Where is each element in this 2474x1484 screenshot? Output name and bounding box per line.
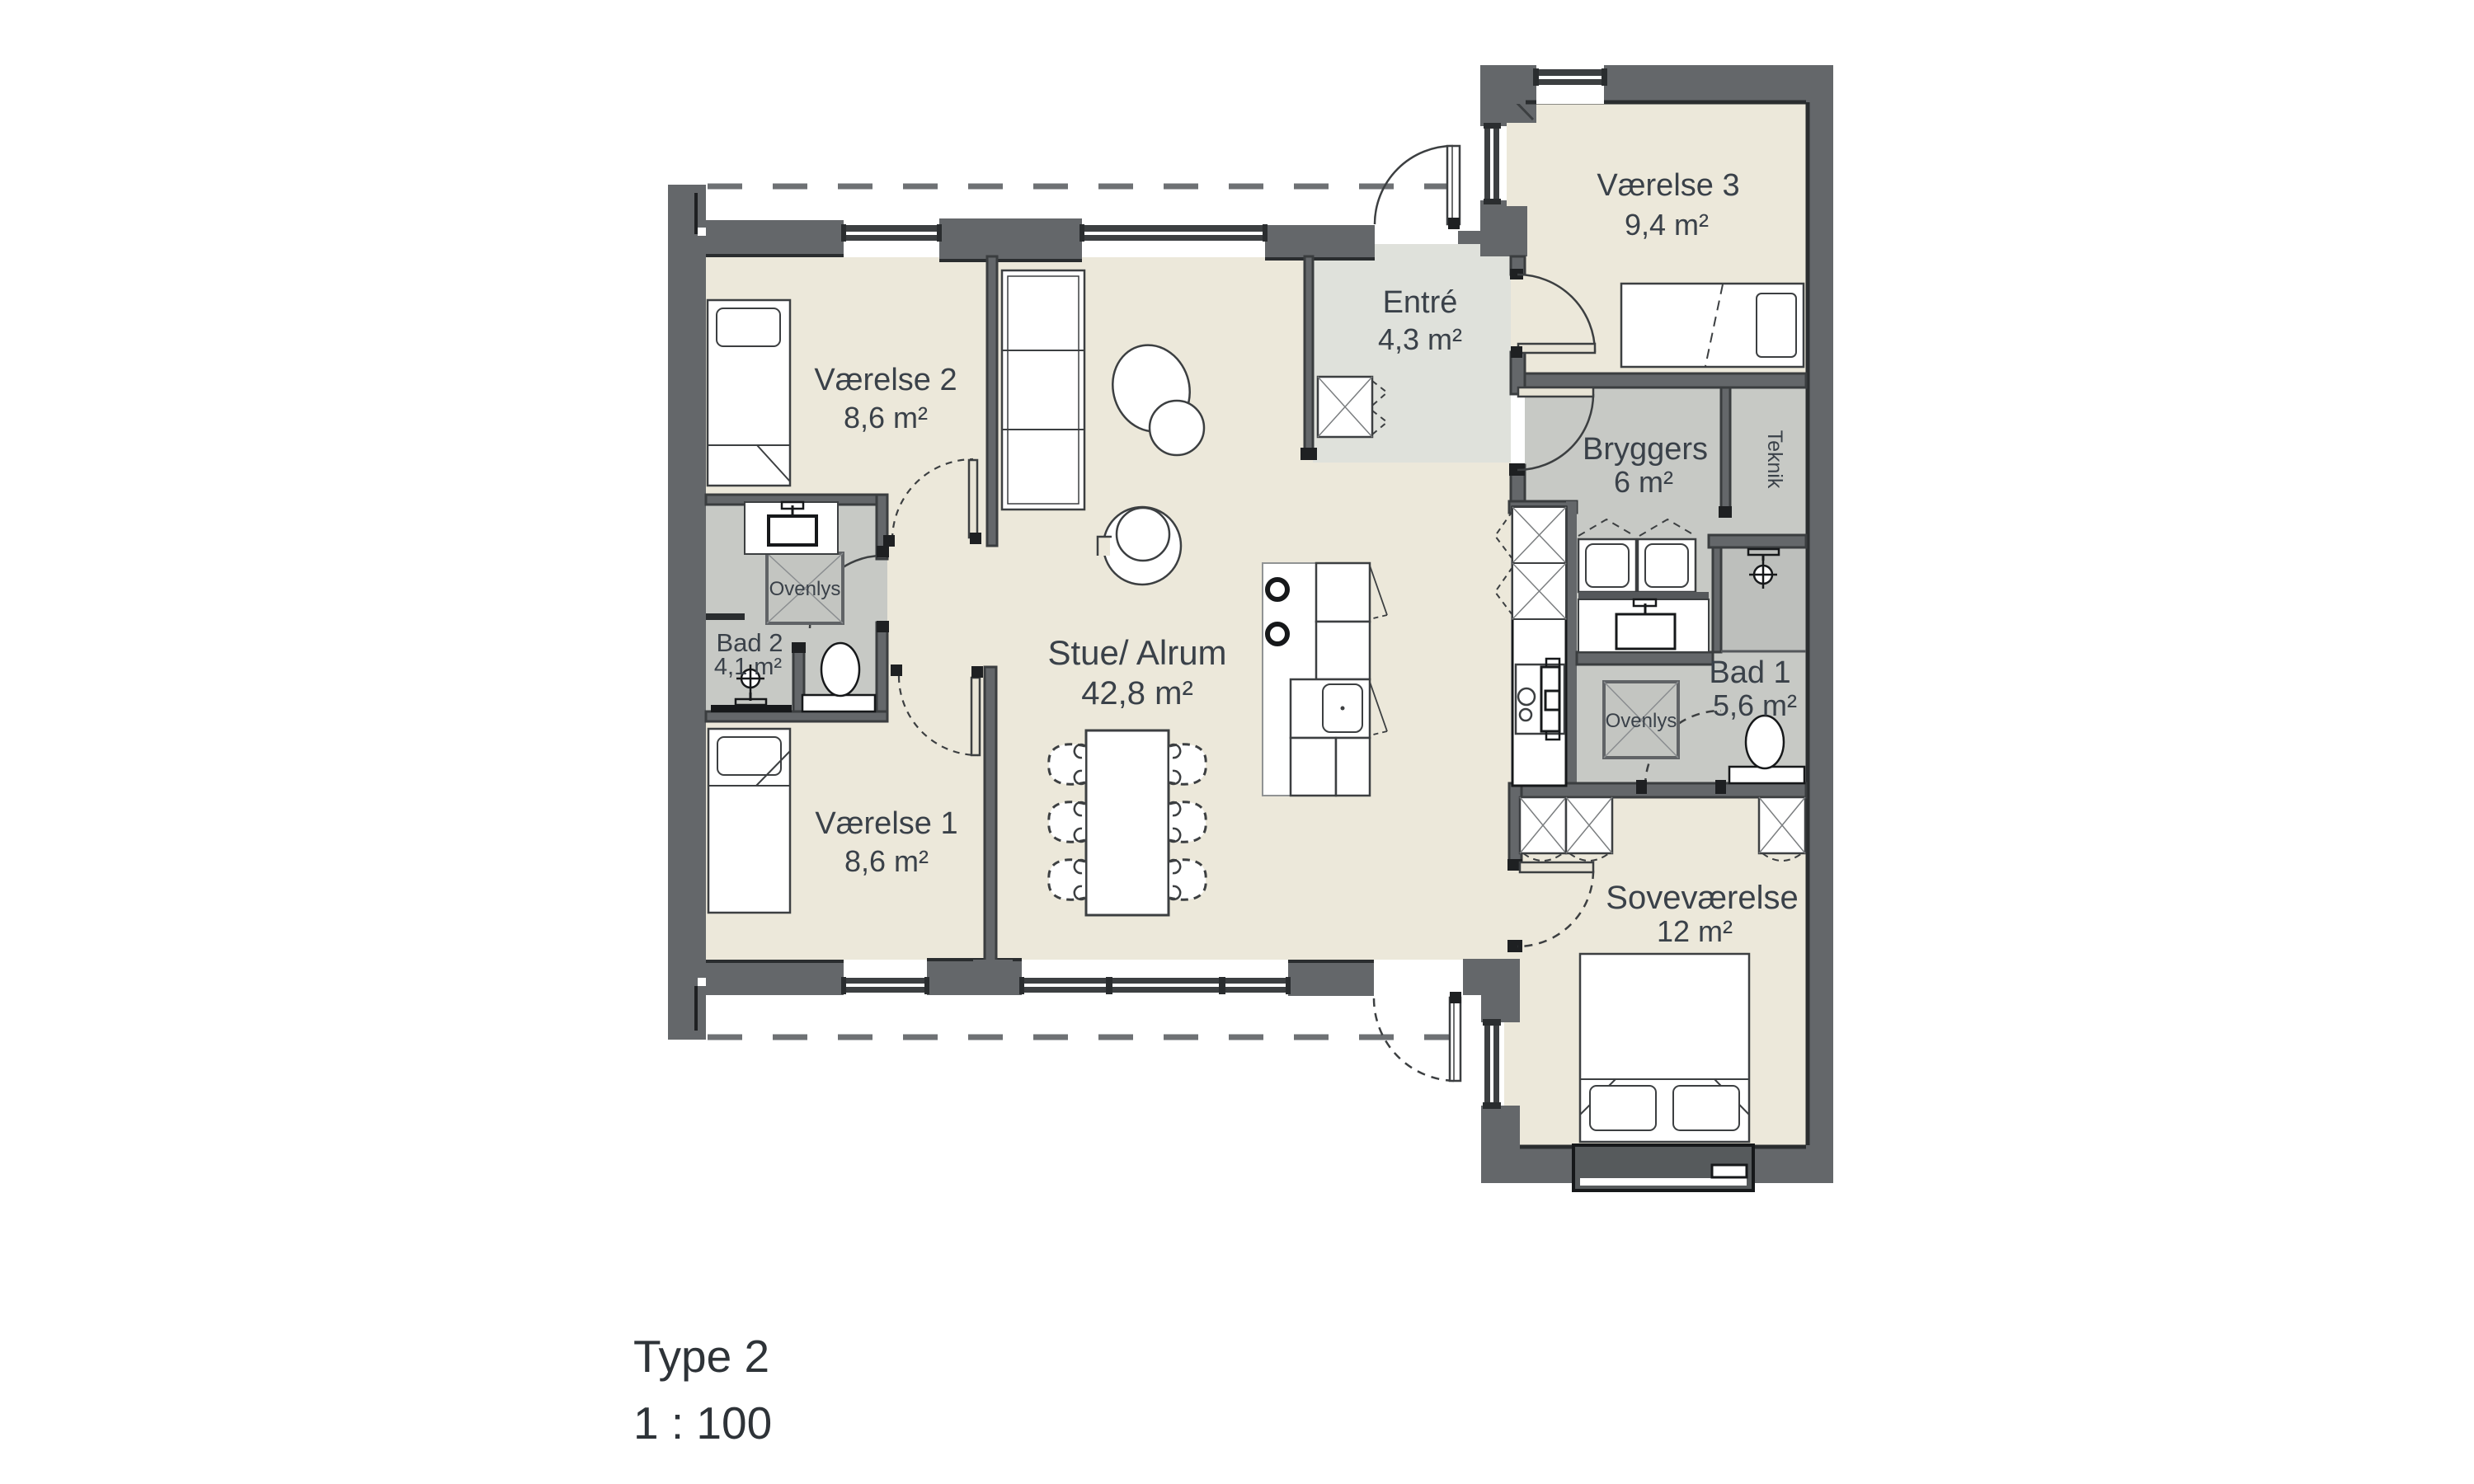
svg-text:8,6 m²: 8,6 m² (844, 844, 929, 878)
svg-text:8,6 m²: 8,6 m² (844, 401, 928, 434)
svg-text:Entré: Entré (1383, 285, 1458, 320)
svg-text:Teknik: Teknik (1763, 430, 1786, 489)
svg-text:Bad 1: Bad 1 (1709, 655, 1790, 690)
svg-text:1 : 100: 1 : 100 (633, 1397, 772, 1449)
svg-text:Stue/ Alrum: Stue/ Alrum (1047, 633, 1226, 672)
svg-text:Værelse 2: Værelse 2 (814, 363, 957, 397)
svg-text:12 m²: 12 m² (1657, 914, 1733, 948)
svg-text:4,3 m²: 4,3 m² (1378, 322, 1462, 356)
svg-text:6 m²: 6 m² (1614, 465, 1673, 499)
svg-text:Værelse 1: Værelse 1 (815, 806, 957, 841)
svg-text:Soveværelse: Soveværelse (1606, 880, 1798, 916)
svg-text:Værelse 3: Værelse 3 (1597, 168, 1739, 203)
svg-text:9,4 m²: 9,4 m² (1625, 208, 1709, 242)
svg-text:Bryggers: Bryggers (1583, 432, 1708, 467)
svg-text:Bad 2: Bad 2 (716, 628, 783, 657)
svg-text:Ovenlys: Ovenlys (1606, 710, 1677, 732)
svg-text:Type 2: Type 2 (633, 1331, 769, 1382)
svg-text:Ovenlys: Ovenlys (769, 578, 841, 600)
svg-text:5,6 m²: 5,6 m² (1713, 688, 1797, 722)
svg-text:42,8 m²: 42,8 m² (1081, 675, 1193, 711)
svg-text:4,1 m²: 4,1 m² (714, 654, 783, 680)
